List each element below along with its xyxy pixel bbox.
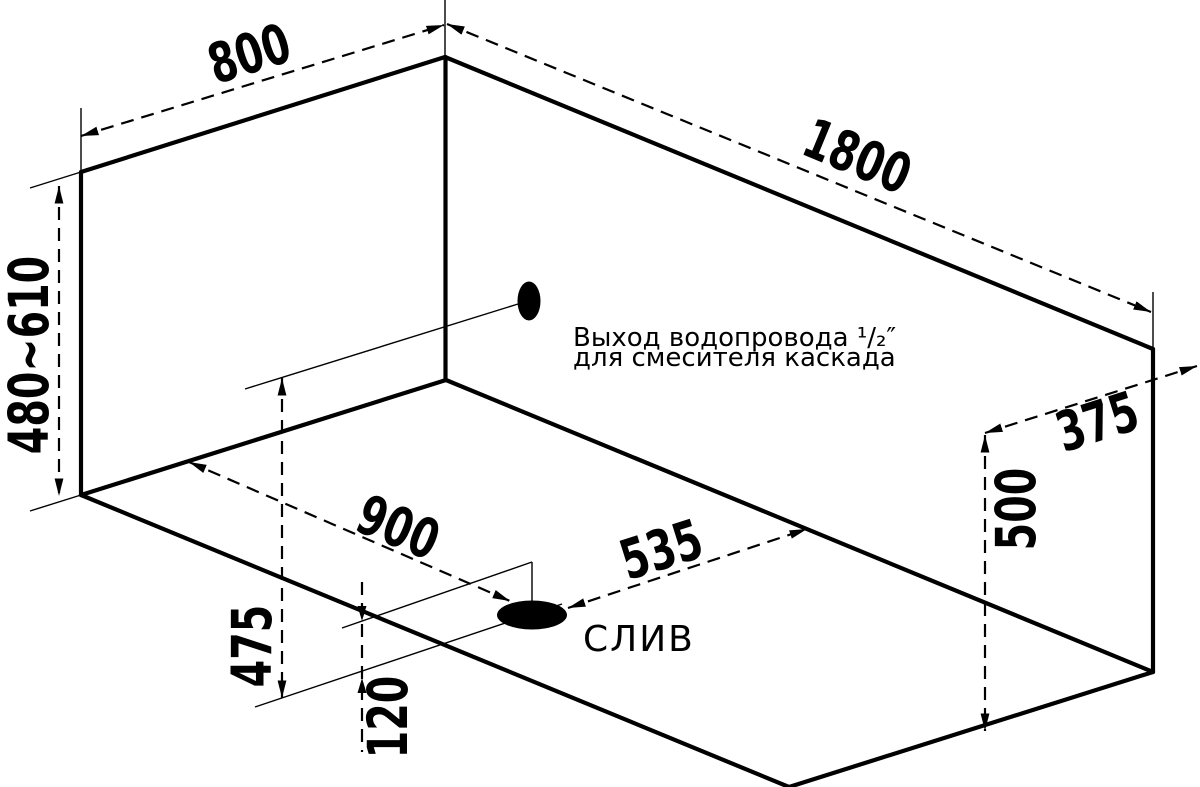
extension-line-left-corner-top — [30, 172, 81, 188]
edge-bottom-front-right — [789, 672, 1153, 787]
dim-label-535: 535 — [613, 509, 711, 594]
dim-label-900: 900 — [348, 484, 448, 574]
dim-label-800: 800 — [201, 13, 299, 98]
water-outlet-hole — [518, 282, 541, 321]
dim-label-500: 500 — [986, 468, 1049, 551]
dim-label-375: 375 — [1049, 381, 1147, 466]
outlet-leader-line — [245, 304, 518, 389]
edge-top-right — [445, 57, 1153, 349]
dim-label-120: 120 — [358, 676, 421, 759]
bathtub-dimension-drawing: 800 1800 480~610 375 500 900 535 475 120… — [0, 0, 1200, 787]
drain-hole — [497, 601, 567, 630]
dim-label-480-610: 480~610 — [0, 256, 62, 454]
extension-line-left-corner-bottom — [30, 495, 81, 511]
drain-label: СЛИВ — [583, 619, 695, 660]
dimension-line-900 — [189, 462, 510, 601]
diagram-canvas: 800 1800 480~610 375 500 900 535 475 120… — [0, 0, 1200, 787]
dimension-line-1800 — [447, 24, 1151, 312]
edge-bottom-back-left — [81, 380, 446, 495]
outlet-label-line2: для смесителя каскада — [573, 343, 896, 373]
dim-label-475: 475 — [222, 605, 285, 688]
